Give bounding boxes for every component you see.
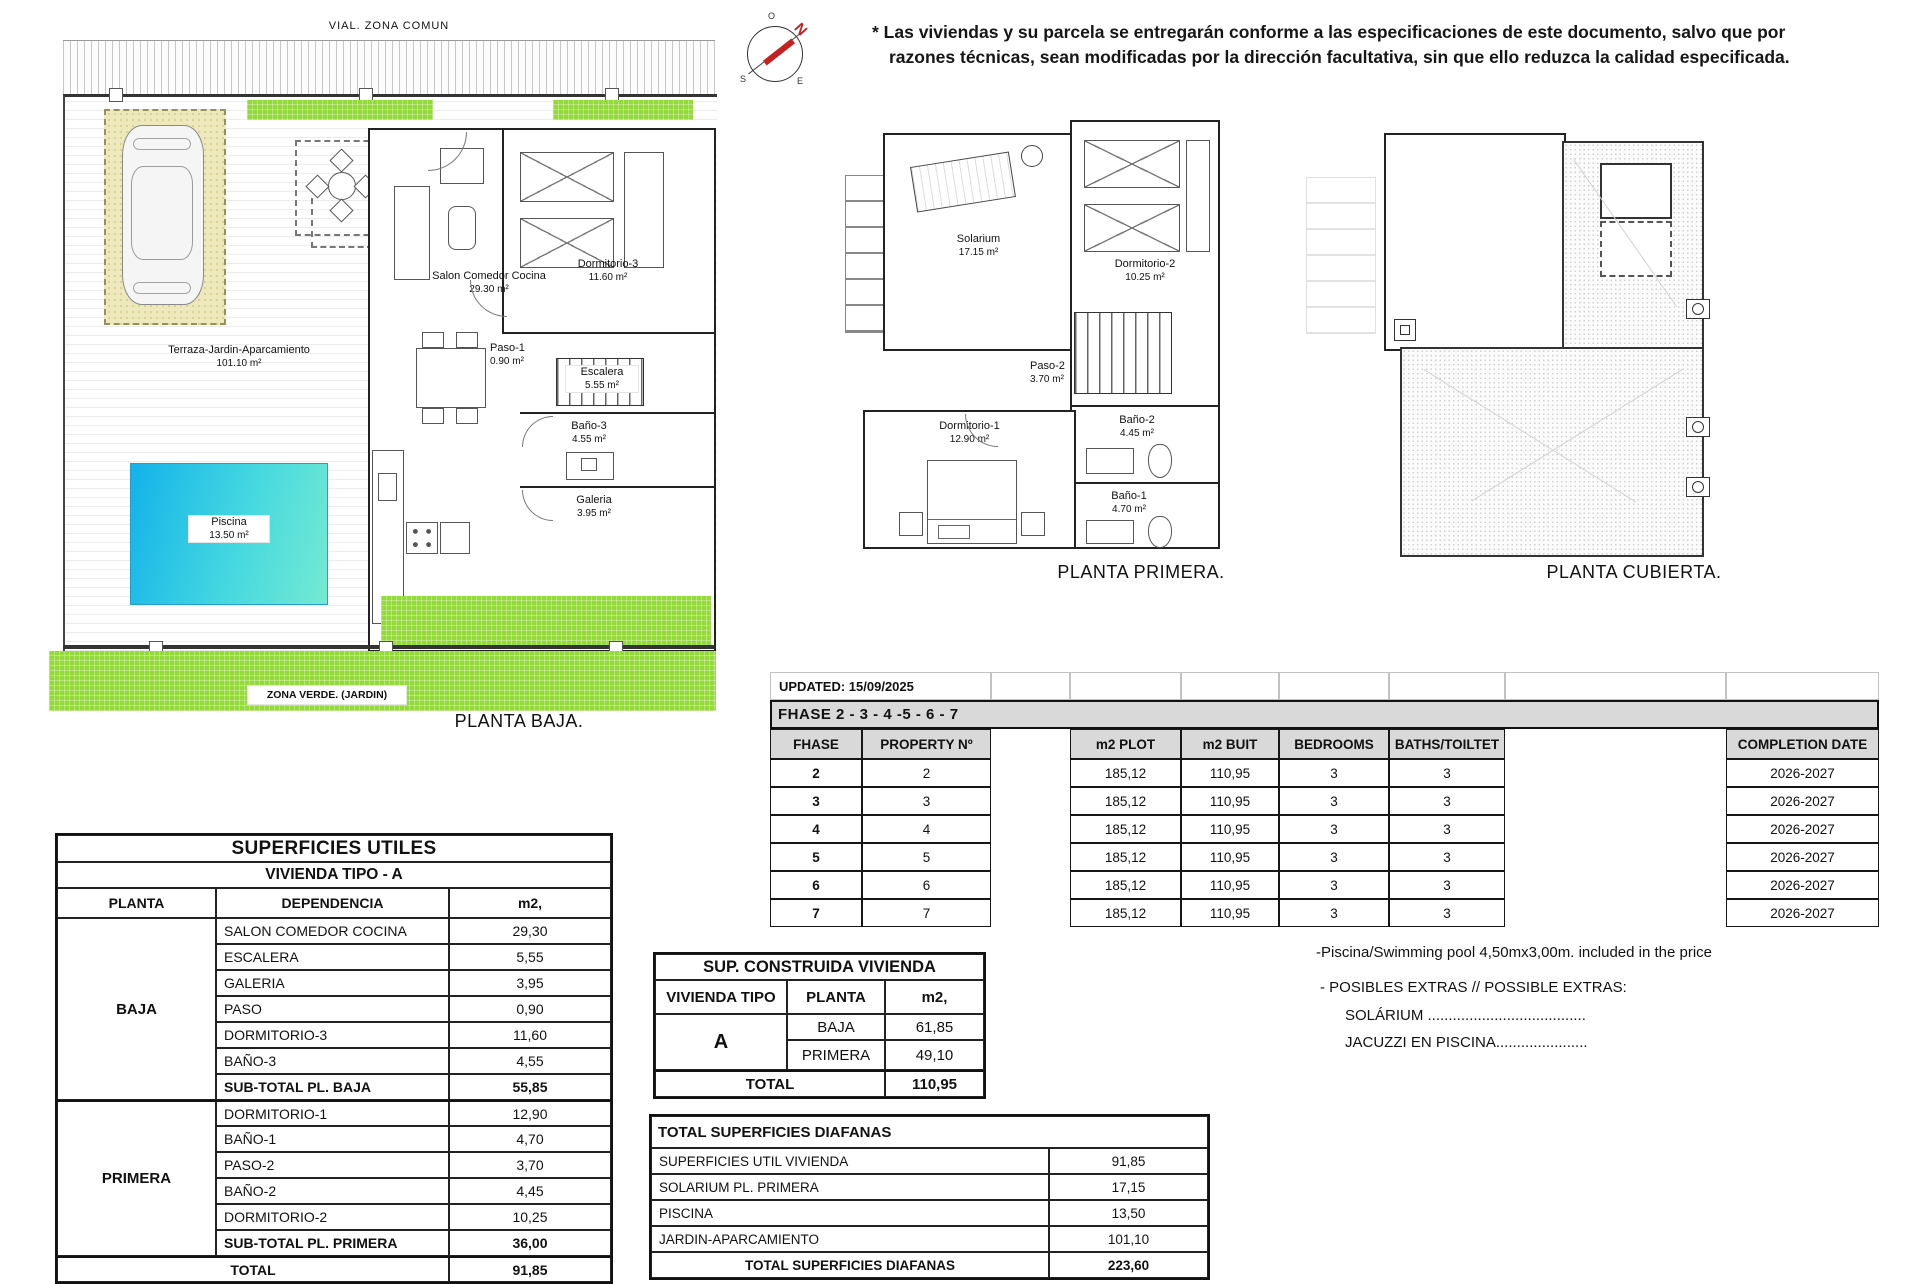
cell-built: 110,95 [1181, 787, 1279, 815]
door-arc [522, 490, 553, 521]
col-header-tipo: VIVIENDA TIPO [655, 980, 787, 1014]
col-header-bedrooms: BEDROOMS [1279, 729, 1389, 759]
nightstand-icon [899, 512, 923, 536]
sun-lounger-icon [910, 151, 1016, 212]
bath-sink-icon [1086, 448, 1134, 474]
row-value: 4,45 [449, 1178, 611, 1204]
bano1-label: Baño-1 4.70 m² [1074, 490, 1184, 516]
cell-fhase: 2 [770, 759, 862, 787]
superficies-utiles-table: SUPERFICIES UTILES VIVIENDA TIPO - A PLA… [55, 833, 613, 1284]
row-value: 49,10 [885, 1040, 984, 1070]
piscina-pool: Piscina 13.50 m² [130, 463, 328, 605]
row-label: BAÑO-2 [216, 1178, 449, 1204]
row-value: 17,15 [1049, 1174, 1208, 1200]
row-value: 13,50 [1049, 1200, 1208, 1226]
gap-cell [1505, 787, 1726, 815]
cell-baths: 3 [1389, 787, 1505, 815]
cell-built: 110,95 [1181, 815, 1279, 843]
chair-icon [329, 148, 353, 172]
cell-fhase: 6 [770, 871, 862, 899]
planta-primera-group-label: PRIMERA [57, 1100, 216, 1256]
disclaimer-line-2: razones técnicas, sean modificadas por l… [889, 45, 1852, 70]
row-value: 5,55 [449, 944, 611, 970]
cell-completion: 2026-2027 [1726, 899, 1879, 927]
chair-icon [456, 408, 478, 424]
row-value: 4,70 [449, 1126, 611, 1152]
row-label: PISCINA [651, 1200, 1049, 1226]
cell-bedrooms: 3 [1279, 787, 1389, 815]
planta-baja-group-label: BAJA [57, 918, 216, 1100]
cell-fhase: 7 [770, 899, 862, 927]
chair-icon [456, 332, 478, 348]
roof-lower-area [1400, 347, 1704, 557]
updated-cell: UPDATED: 15/09/2025 [770, 672, 991, 700]
row-label: JARDIN-APARCAMIENTO [651, 1226, 1049, 1252]
piscina-label: Piscina 13.50 m² [189, 516, 269, 542]
construida-total-value: 110,95 [885, 1070, 984, 1097]
side-table-icon [1021, 145, 1043, 167]
col-header-m2: m2, [885, 980, 984, 1014]
side-table-icon [448, 206, 476, 250]
gap-cell [1505, 843, 1726, 871]
subtotal-baja-label: SUB-TOTAL PL. BAJA [216, 1074, 449, 1100]
planta-baja-title: PLANTA BAJA. [389, 711, 649, 732]
diafanas-title: TOTAL SUPERFICIES DIAFANAS [651, 1116, 1208, 1148]
col-header-baths: BATHS/TOILTET [1389, 729, 1505, 759]
gap-cell [991, 843, 1070, 871]
escalera-label: Escalera 5.55 m² [566, 366, 638, 392]
architectural-plan-sheet: { "disclaimer": { "line1": "* Las vivien… [0, 0, 1920, 1280]
sofa-icon [394, 186, 430, 280]
roof-drain [1686, 417, 1710, 437]
disclaimer-line-1: * Las viviendas y su parcela se entregar… [872, 20, 1852, 45]
phase-band: FHASE 2 - 3 - 4 -5 - 6 - 7 [770, 700, 1879, 729]
row-value: 11,60 [449, 1022, 611, 1048]
row-label: DORMITORIO-2 [216, 1204, 449, 1230]
row-label: PASO-2 [216, 1152, 449, 1178]
primera-house-column: Dormitorio-2 10.25 m² Baño-2 4.45 m² Bañ… [1070, 120, 1220, 549]
bed-icon [1084, 140, 1180, 188]
cell-plot: 185,12 [1070, 843, 1181, 871]
row-value: 91,85 [1049, 1148, 1208, 1174]
gap-cell [991, 815, 1070, 843]
cell-property: 6 [862, 871, 991, 899]
solarium-label: Solarium 17.15 m² [885, 233, 1072, 259]
cell-plot: 185,12 [1070, 815, 1181, 843]
cell-plot: 185,12 [1070, 759, 1181, 787]
diafanas-total-value: 223,60 [1049, 1252, 1208, 1278]
row-value: 3,95 [449, 970, 611, 996]
parking-space [104, 109, 226, 325]
planta-cubierta-title: PLANTA CUBIERTA. [1534, 562, 1734, 583]
compass-rose-icon: N O S E [737, 8, 817, 94]
compass-top-label: O [768, 11, 775, 21]
row-label: DORMITORIO-3 [216, 1022, 449, 1048]
car-icon [122, 125, 204, 305]
row-value: 10,25 [449, 1204, 611, 1230]
planta-primera-title: PLANTA PRIMERA. [1046, 562, 1236, 583]
row-value: 29,30 [449, 918, 611, 944]
total-value: 91,85 [449, 1256, 611, 1282]
planta-baja-plan: VIAL. ZONA COMUN Terraza-Jardin-Aparcami… [49, 14, 749, 730]
gap-cell [991, 871, 1070, 899]
pool-note: -Piscina/Swimming pool 4,50mx3,00m. incl… [1316, 944, 1712, 961]
door-arc [470, 280, 507, 317]
row-label: BAJA [787, 1014, 885, 1040]
drain-circle [1692, 303, 1704, 315]
dining-table-icon [416, 348, 486, 408]
tipo-value: A [655, 1014, 787, 1070]
chair-icon [422, 408, 444, 424]
vivienda-tipo-subtitle: VIVIENDA TIPO - A [57, 862, 611, 888]
cell-property: 7 [862, 899, 991, 927]
gap-cell [1505, 871, 1726, 899]
diafanas-table: TOTAL SUPERFICIES DIAFANAS SUPERFICIES U… [649, 1114, 1210, 1280]
wardrobe-icon [624, 152, 664, 268]
wall-post [109, 88, 123, 102]
cell-fhase: 5 [770, 843, 862, 871]
bed-line [928, 519, 1016, 520]
cell-completion: 2026-2027 [1726, 843, 1879, 871]
interior-wall [1072, 482, 1218, 484]
cell-bedrooms: 3 [1279, 899, 1389, 927]
drain-circle [1692, 481, 1704, 493]
fridge-icon [440, 522, 470, 554]
row-label: SUPERFICIES UTIL VIVIENDA [651, 1148, 1049, 1174]
subtotal-primera-value: 36,00 [449, 1230, 611, 1256]
cell-baths: 3 [1389, 815, 1505, 843]
grass-strip-top-left [247, 100, 433, 120]
ghost-cell [1279, 672, 1389, 700]
cell-built: 110,95 [1181, 759, 1279, 787]
cell-completion: 2026-2027 [1726, 815, 1879, 843]
cell-baths: 3 [1389, 899, 1505, 927]
cell-bedrooms: 3 [1279, 759, 1389, 787]
row-label: DORMITORIO-1 [216, 1100, 449, 1126]
solarium-extra-note: SOLÁRIUM ...............................… [1345, 1007, 1586, 1024]
interior-wall [520, 486, 714, 488]
chimney-inner [1400, 325, 1410, 335]
interior-wall [520, 412, 714, 414]
subtotal-baja-value: 55,85 [449, 1074, 611, 1100]
cell-built: 110,95 [1181, 899, 1279, 927]
bed-icon [520, 152, 614, 202]
wardrobe-icon [1186, 140, 1210, 252]
zona-verde-label: ZONA VERDE. (JARDIN) [248, 686, 406, 704]
cell-built: 110,95 [1181, 843, 1279, 871]
col-header-m2: m2, [449, 888, 611, 918]
col-header-dependencia: DEPENDENCIA [216, 888, 449, 918]
cell-property: 4 [862, 815, 991, 843]
construida-title: SUP. CONSTRUIDA VIVIENDA [655, 954, 984, 980]
cell-baths: 3 [1389, 871, 1505, 899]
stove-icon [406, 522, 438, 554]
row-value: 61,85 [885, 1014, 984, 1040]
col-header-fhase: FHASE [770, 729, 862, 759]
chair-icon [305, 174, 329, 198]
roof-void [1384, 133, 1566, 351]
cell-bedrooms: 3 [1279, 843, 1389, 871]
row-value: 101,10 [1049, 1226, 1208, 1252]
cell-plot: 185,12 [1070, 899, 1181, 927]
terraza-label: Terraza-Jardin-Aparcamiento 101.10 m² [109, 344, 369, 370]
col-header-property: PROPERTY Nº [862, 729, 991, 759]
grass-strip-top-right [553, 100, 693, 120]
header-gap [1505, 729, 1726, 759]
gap-cell [1505, 815, 1726, 843]
extras-note: - POSIBLES EXTRAS // POSSIBLE EXTRAS: [1320, 979, 1627, 996]
ghost-cell [991, 672, 1070, 700]
interior-wall [1072, 405, 1218, 407]
galeria-label: Galeria 3.95 m² [546, 494, 642, 520]
col-header-completion: COMPLETION DATE [1726, 729, 1879, 759]
toilet-icon [1148, 444, 1172, 478]
col-header-built: m2 BUIT [1181, 729, 1279, 759]
gap-cell [1505, 759, 1726, 787]
sink-icon [378, 473, 397, 501]
solarium-room: Solarium 17.15 m² [883, 133, 1074, 351]
cell-baths: 3 [1389, 759, 1505, 787]
ghost-cell [1070, 672, 1181, 700]
cell-bedrooms: 3 [1279, 815, 1389, 843]
diafanas-total-label: TOTAL SUPERFICIES DIAFANAS [651, 1252, 1049, 1278]
house-footprint: Dormitorio-3 11.60 m² Salon Comedor Coci… [368, 128, 716, 652]
balcony-rails [845, 175, 885, 333]
subtotal-primera-label: SUB-TOTAL PL. PRIMERA [216, 1230, 449, 1256]
disclaimer-text: * Las viviendas y su parcela se entregar… [872, 20, 1852, 69]
header-gap [991, 729, 1070, 759]
cell-property: 3 [862, 787, 991, 815]
car-cabin [131, 166, 193, 260]
compass-east-label: E [797, 76, 803, 86]
ghost-cell [1505, 672, 1726, 700]
superficies-title: SUPERFICIES UTILES [57, 835, 611, 862]
grass-patch-bottom-right [381, 596, 711, 646]
outdoor-table-icon [328, 172, 356, 200]
paso2-label: Paso-2 3.70 m² [1020, 360, 1116, 386]
row-label: BAÑO-1 [216, 1126, 449, 1152]
total-label: TOTAL [57, 1256, 449, 1282]
row-label: BAÑO-3 [216, 1048, 449, 1074]
cell-completion: 2026-2027 [1726, 787, 1879, 815]
dormitorio2-label: Dormitorio-2 10.25 m² [1072, 258, 1218, 284]
row-label: ESCALERA [216, 944, 449, 970]
gap-cell [991, 899, 1070, 927]
cell-plot: 185,12 [1070, 871, 1181, 899]
bano2-label: Baño-2 4.45 m² [1082, 414, 1192, 440]
gap-cell [991, 787, 1070, 815]
row-label: SALON COMEDOR COCINA [216, 918, 449, 944]
cell-fhase: 3 [770, 787, 862, 815]
col-header-planta: PLANTA [57, 888, 216, 918]
bath-sink-icon [566, 452, 614, 480]
road-label: VIAL. ZONA COMUN [63, 20, 715, 34]
cell-baths: 3 [1389, 843, 1505, 871]
ghost-cell [1181, 672, 1279, 700]
planta-cubierta-plan: PLANTA CUBIERTA. [1384, 129, 1734, 589]
cell-completion: 2026-2027 [1726, 759, 1879, 787]
roof-drain [1686, 299, 1710, 319]
row-value: 3,70 [449, 1152, 611, 1178]
ghost-cell [1389, 672, 1505, 700]
planta-primera-plan: Solarium 17.15 m² Dormitorio-2 10.25 m² … [784, 104, 1244, 586]
phase-table: UPDATED: 15/09/2025 FHASE 2 - 3 - 4 -5 -… [770, 672, 1879, 927]
row-label: SOLARIUM PL. PRIMERA [651, 1174, 1049, 1200]
col-header-planta: PLANTA [787, 980, 885, 1014]
toilet-icon [1148, 516, 1172, 548]
chimney-box [1394, 319, 1416, 341]
door-arc [522, 416, 553, 447]
bed-icon [927, 460, 1017, 544]
car-windshield [133, 138, 191, 150]
cell-bedrooms: 3 [1279, 871, 1389, 899]
cell-built: 110,95 [1181, 871, 1279, 899]
dormitorio1-room: Dormitorio-1 12.90 m² [863, 410, 1076, 549]
gap-cell [991, 759, 1070, 787]
cell-fhase: 4 [770, 815, 862, 843]
drain-circle [1692, 421, 1704, 433]
chair-icon [422, 332, 444, 348]
col-header-plot: m2 PLOT [1070, 729, 1181, 759]
row-value: 0,90 [449, 996, 611, 1022]
cell-property: 2 [862, 759, 991, 787]
gap-cell [1505, 899, 1726, 927]
cell-plot: 185,12 [1070, 787, 1181, 815]
row-label: PASO [216, 996, 449, 1022]
row-value: 4,55 [449, 1048, 611, 1074]
roof-drain [1686, 477, 1710, 497]
cell-property: 5 [862, 843, 991, 871]
ghost-cell [1726, 672, 1879, 700]
nightstand-icon [1021, 512, 1045, 536]
sup-construida-table: SUP. CONSTRUIDA VIVIENDA VIVIENDA TIPO P… [653, 952, 986, 1099]
bed-icon [1084, 204, 1180, 252]
bath-sink-icon [1086, 520, 1134, 544]
cell-completion: 2026-2027 [1726, 871, 1879, 899]
sink-basin [581, 458, 597, 471]
construida-total-label: TOTAL [655, 1070, 885, 1097]
pillow-icon [938, 525, 970, 539]
row-label: GALERIA [216, 970, 449, 996]
neighbour-ghost-rails [1306, 177, 1376, 334]
jacuzzi-extra-note: JACUZZI EN PISCINA...................... [1345, 1034, 1588, 1051]
car-rear-window [133, 282, 191, 294]
row-label: PRIMERA [787, 1040, 885, 1070]
row-value: 12,90 [449, 1100, 611, 1126]
